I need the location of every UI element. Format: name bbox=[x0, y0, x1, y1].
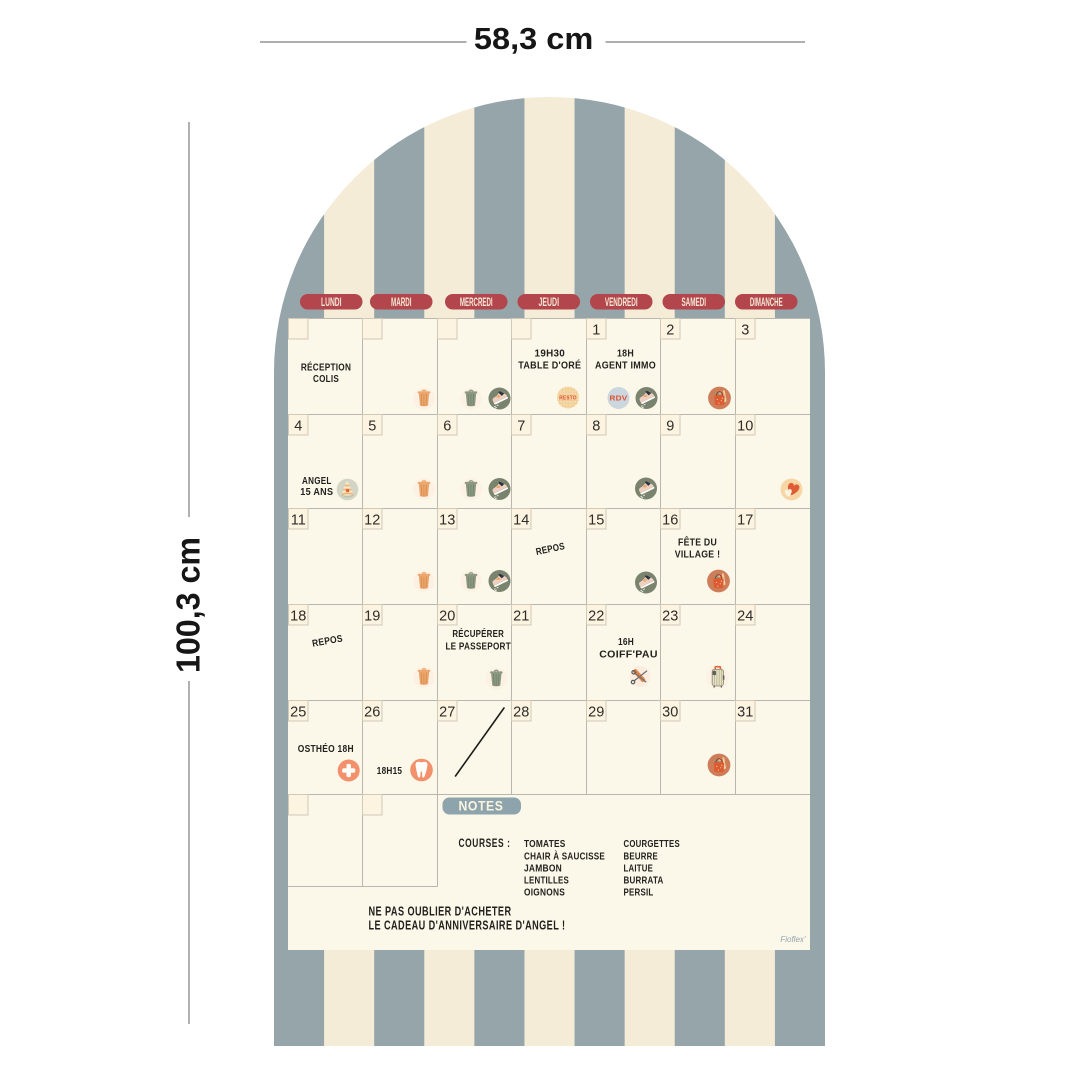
svg-text:58,3 cm: 58,3 cm bbox=[474, 21, 594, 56]
svg-text:COURGETTES: COURGETTES bbox=[624, 838, 680, 850]
svg-text:1: 1 bbox=[592, 323, 600, 339]
svg-text:17: 17 bbox=[737, 513, 753, 529]
svg-text:6: 6 bbox=[443, 419, 451, 435]
svg-text:FÊTE DU: FÊTE DU bbox=[678, 537, 717, 549]
svg-text:16: 16 bbox=[662, 513, 678, 529]
svg-text:CHAIR À SAUCISSE: CHAIR À SAUCISSE bbox=[524, 849, 605, 862]
svg-text:JAMBON: JAMBON bbox=[524, 862, 562, 874]
svg-text:COURSES :: COURSES : bbox=[459, 838, 511, 850]
svg-text:28: 28 bbox=[513, 705, 529, 721]
svg-text:TOMATES: TOMATES bbox=[524, 838, 566, 850]
svg-text:21: 21 bbox=[513, 609, 529, 625]
svg-text:19: 19 bbox=[364, 609, 380, 625]
svg-text:29: 29 bbox=[588, 705, 604, 721]
svg-text:LENTILLES: LENTILLES bbox=[524, 875, 569, 887]
svg-text:18H15: 18H15 bbox=[377, 766, 403, 777]
svg-text:SAMEDI: SAMEDI bbox=[681, 297, 706, 309]
svg-text:DIMANCHE: DIMANCHE bbox=[750, 297, 783, 309]
svg-text:18: 18 bbox=[290, 609, 306, 625]
svg-text:MERCREDI: MERCREDI bbox=[460, 297, 493, 309]
svg-text:14: 14 bbox=[513, 513, 529, 529]
svg-text:MARDI: MARDI bbox=[391, 297, 412, 309]
svg-text:31: 31 bbox=[737, 705, 753, 721]
svg-text:11: 11 bbox=[291, 513, 306, 529]
svg-text:12: 12 bbox=[364, 513, 380, 529]
svg-text:NOTES: NOTES bbox=[459, 799, 504, 814]
svg-text:19H30: 19H30 bbox=[535, 349, 566, 360]
svg-text:RÉCUPÉRER: RÉCUPÉRER bbox=[452, 628, 504, 640]
svg-text:27: 27 bbox=[439, 705, 455, 721]
svg-text:15: 15 bbox=[588, 513, 604, 529]
svg-text:COIFF'PAU: COIFF'PAU bbox=[599, 650, 658, 661]
svg-text:15 ANS: 15 ANS bbox=[300, 487, 333, 498]
svg-text:100,3 cm: 100,3 cm bbox=[170, 537, 207, 673]
svg-text:JEUDI: JEUDI bbox=[539, 297, 560, 309]
svg-text:RÉCEPTION: RÉCEPTION bbox=[301, 362, 351, 374]
svg-text:24: 24 bbox=[737, 609, 753, 625]
svg-text:16H: 16H bbox=[618, 637, 634, 648]
svg-text:PERSIL: PERSIL bbox=[624, 887, 654, 899]
svg-text:Fioflex’: Fioflex’ bbox=[780, 935, 806, 944]
svg-text:9: 9 bbox=[666, 419, 674, 435]
svg-text:10: 10 bbox=[737, 419, 753, 435]
svg-text:8: 8 bbox=[592, 419, 600, 435]
svg-text:5: 5 bbox=[368, 419, 376, 435]
svg-text:LE PASSEPORT: LE PASSEPORT bbox=[445, 642, 511, 653]
svg-text:LAITUE: LAITUE bbox=[624, 862, 654, 874]
svg-text:25: 25 bbox=[290, 705, 306, 721]
svg-text:COLIS: COLIS bbox=[313, 374, 339, 385]
svg-text:VILLAGE !: VILLAGE ! bbox=[675, 550, 721, 561]
svg-text:TABLE D'ORÉ: TABLE D'ORÉ bbox=[518, 360, 581, 372]
svg-text:OSTHÉO 18H: OSTHÉO 18H bbox=[298, 743, 354, 755]
svg-text:2: 2 bbox=[666, 323, 674, 339]
svg-text:20: 20 bbox=[439, 609, 455, 625]
svg-text:7: 7 bbox=[517, 419, 525, 435]
svg-text:26: 26 bbox=[364, 705, 380, 721]
svg-text:30: 30 bbox=[662, 705, 678, 721]
svg-text:ANGEL: ANGEL bbox=[302, 476, 332, 487]
svg-text:3: 3 bbox=[741, 323, 749, 339]
svg-text:AGENT IMMO: AGENT IMMO bbox=[595, 361, 656, 372]
svg-text:4: 4 bbox=[294, 419, 302, 435]
svg-text:BEURRE: BEURRE bbox=[624, 850, 658, 862]
svg-text:OIGNONS: OIGNONS bbox=[524, 887, 565, 899]
svg-text:LUNDI: LUNDI bbox=[321, 297, 342, 309]
svg-text:NE PAS OUBLIER D'ACHETER: NE PAS OUBLIER D'ACHETER bbox=[369, 905, 512, 919]
svg-text:13: 13 bbox=[439, 513, 455, 529]
svg-text:22: 22 bbox=[588, 609, 604, 625]
svg-text:23: 23 bbox=[662, 609, 678, 625]
svg-text:VENDREDI: VENDREDI bbox=[605, 297, 638, 309]
svg-text:BURRATA: BURRATA bbox=[624, 875, 664, 887]
svg-text:LE CADEAU D'ANNIVERSAIRE D'ANG: LE CADEAU D'ANNIVERSAIRE D'ANGEL ! bbox=[369, 919, 566, 933]
svg-text:18H: 18H bbox=[617, 349, 634, 360]
